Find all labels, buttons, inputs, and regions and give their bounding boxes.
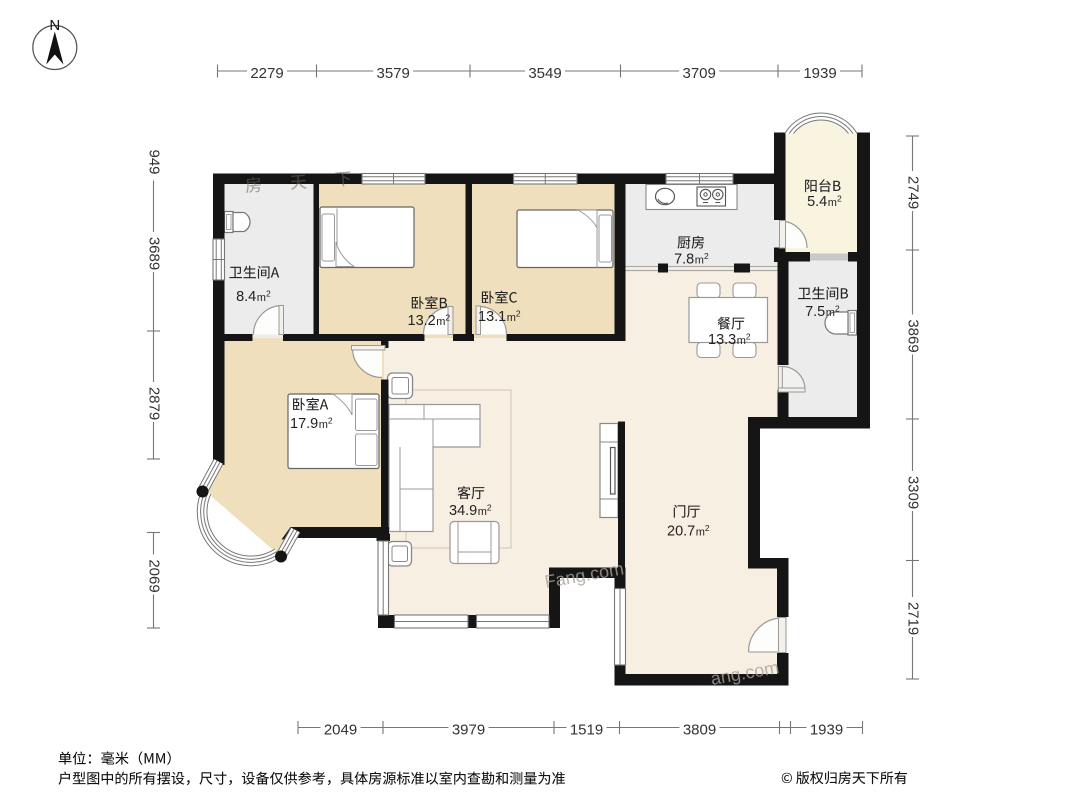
svg-text:2049: 2049 xyxy=(324,722,357,739)
svg-text:7.8m2: 7.8m2 xyxy=(674,251,709,268)
svg-text:3689: 3689 xyxy=(146,237,163,270)
svg-text:2879: 2879 xyxy=(146,387,163,420)
svg-text:N: N xyxy=(49,17,60,34)
svg-text:2719: 2719 xyxy=(905,602,922,635)
svg-text:3549: 3549 xyxy=(528,65,561,82)
svg-text:1939: 1939 xyxy=(810,722,843,739)
svg-text:1519: 1519 xyxy=(570,722,603,739)
svg-text:5.4m2: 5.4m2 xyxy=(807,194,842,211)
svg-text:3709: 3709 xyxy=(683,65,716,82)
svg-text:3979: 3979 xyxy=(452,722,485,739)
svg-text:8.4m2: 8.4m2 xyxy=(236,289,271,306)
svg-text:3579: 3579 xyxy=(377,65,410,82)
svg-text:2279: 2279 xyxy=(250,65,283,82)
svg-text:949: 949 xyxy=(146,149,163,174)
svg-text:2069: 2069 xyxy=(146,559,163,592)
svg-text:3869: 3869 xyxy=(905,319,922,352)
svg-text:1939: 1939 xyxy=(803,65,836,82)
svg-text:2749: 2749 xyxy=(905,176,922,209)
svg-text:3809: 3809 xyxy=(683,722,716,739)
svg-text:3309: 3309 xyxy=(905,476,922,509)
svg-text:7.5m2: 7.5m2 xyxy=(805,304,840,321)
